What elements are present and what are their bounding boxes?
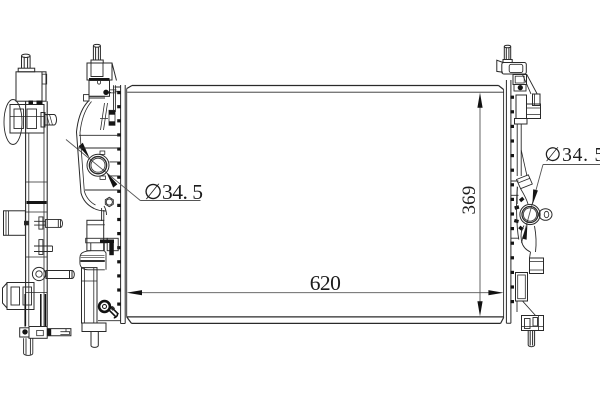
svg-text:369: 369	[459, 186, 480, 215]
svg-text:∅34. 5: ∅34. 5	[544, 145, 600, 166]
svg-text:∅34. 5: ∅34. 5	[144, 180, 203, 204]
svg-text:620: 620	[310, 271, 340, 295]
